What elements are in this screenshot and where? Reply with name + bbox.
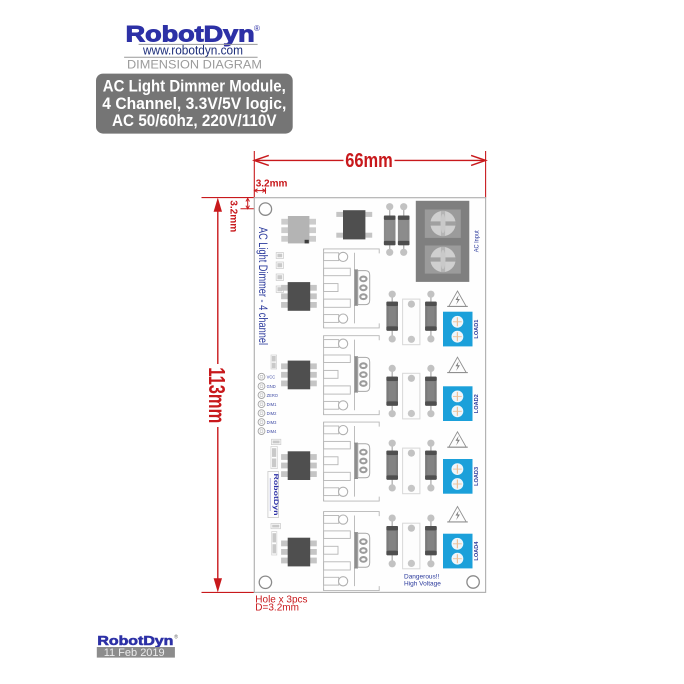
svg-text:www.robotdyn.com: www.robotdyn.com bbox=[142, 42, 243, 57]
svg-text:High Voltage: High Voltage bbox=[404, 581, 441, 588]
svg-text:3.2mm: 3.2mm bbox=[228, 200, 239, 232]
svg-text:AC Input: AC Input bbox=[473, 230, 480, 252]
svg-text:D=3.2mm: D=3.2mm bbox=[255, 603, 299, 614]
svg-text:GND: GND bbox=[267, 384, 276, 389]
svg-text:LOAD1: LOAD1 bbox=[474, 320, 480, 339]
svg-text:LOAD4: LOAD4 bbox=[474, 541, 480, 561]
svg-text:RobotDyn: RobotDyn bbox=[272, 474, 278, 516]
svg-text:DIM4: DIM4 bbox=[267, 429, 278, 434]
svg-text:66mm: 66mm bbox=[345, 150, 393, 172]
svg-text:11 Feb 2019: 11 Feb 2019 bbox=[104, 647, 165, 659]
svg-text:DIMENSION DIAGRAM: DIMENSION DIAGRAM bbox=[127, 58, 262, 72]
svg-text:4 Channel, 3.3V/5V logic,: 4 Channel, 3.3V/5V logic, bbox=[102, 95, 286, 113]
svg-text:DIM2: DIM2 bbox=[267, 411, 278, 416]
svg-text:3.2mm: 3.2mm bbox=[256, 178, 288, 189]
svg-text:Dangerous!!: Dangerous!! bbox=[404, 574, 440, 581]
svg-text:LOAD2: LOAD2 bbox=[474, 394, 480, 413]
svg-text:113mm: 113mm bbox=[204, 367, 230, 423]
svg-text:AC Light Dimmer Module,: AC Light Dimmer Module, bbox=[103, 78, 286, 96]
svg-text:AC Light Dimmer - 4 channel: AC Light Dimmer - 4 channel bbox=[256, 227, 270, 345]
svg-text:DIM1: DIM1 bbox=[267, 402, 278, 407]
svg-text:®: ® bbox=[254, 24, 260, 33]
svg-text:LOAD3: LOAD3 bbox=[474, 467, 480, 486]
svg-text:AC 50/60hz, 220V/110V: AC 50/60hz, 220V/110V bbox=[112, 112, 277, 130]
svg-text:RobotDyn: RobotDyn bbox=[97, 633, 173, 648]
svg-text:ZERO: ZERO bbox=[267, 393, 278, 398]
svg-text:DIM3: DIM3 bbox=[267, 420, 278, 425]
svg-text:VCC: VCC bbox=[267, 374, 276, 379]
svg-text:®: ® bbox=[174, 633, 178, 640]
